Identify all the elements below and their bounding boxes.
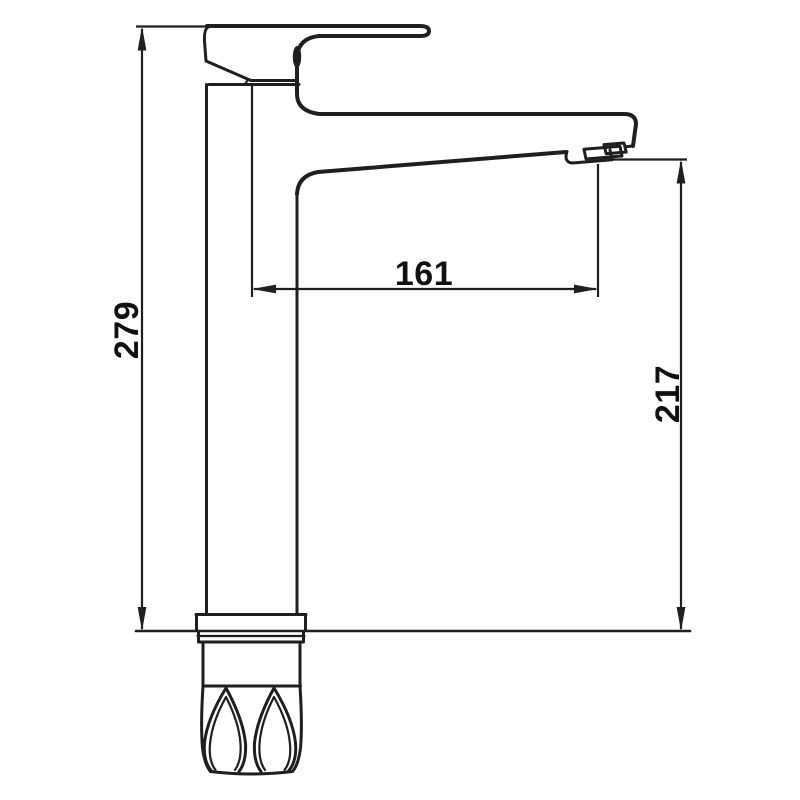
arrowhead-left [252, 285, 276, 294]
handle-hinge-shading [293, 46, 301, 68]
dimension-label-161: 161 [395, 255, 453, 293]
arrowhead-up [677, 160, 686, 184]
faucet-figure [196, 26, 636, 774]
dimension-spout-reach: 161 [252, 86, 598, 297]
spout-underside [297, 152, 566, 194]
faucet-technical-drawing: 279 161 217 [0, 0, 800, 800]
drawing-canvas: 279 161 217 [0, 0, 800, 800]
dimension-outlet-height: 217 [600, 160, 687, 632]
dimension-overall-height: 279 [108, 27, 208, 632]
arrowhead-down [138, 607, 147, 631]
arrowhead-right [574, 285, 598, 294]
arrowhead-down [677, 607, 686, 631]
mounting-nut [202, 643, 302, 775]
spout-tip-underside [626, 146, 633, 147]
dimension-label-217: 217 [649, 365, 687, 423]
dimension-label-279: 279 [108, 301, 146, 359]
arrowhead-up [138, 27, 147, 51]
handle-skirt [204, 27, 297, 81]
base-flange [196, 615, 306, 643]
